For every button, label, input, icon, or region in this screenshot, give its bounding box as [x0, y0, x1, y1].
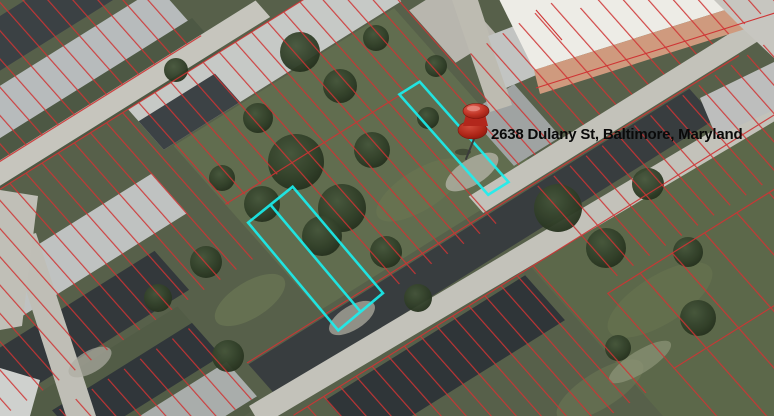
map-viewport[interactable]: 2638 Dulany St, Baltimore, Maryland: [0, 0, 774, 416]
aerial-map-canvas[interactable]: [0, 0, 774, 416]
